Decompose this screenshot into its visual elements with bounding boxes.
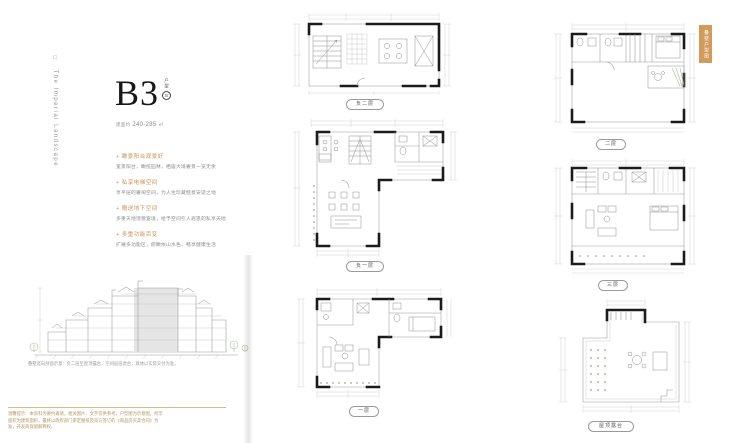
bullet-icon: + [116,206,120,212]
section-elevation-svg [26,272,254,362]
brand-name: The Imperial Landscape [52,70,58,167]
feature-heading: 瞰景阳台观景好 [122,154,164,160]
feature-list: +瞰景阳台观景好 宽景阳台，瞰揽园林，栖居大境奢景一览无余 +私享电梯空间 享平… [116,152,248,256]
footer-divider [8,407,226,408]
feature-body: 享平层的奢阔空间，为人生珍藏惬意安适之地 [116,189,248,196]
balcony-dots-glyph [579,255,644,256]
stairs-glyph [349,136,371,164]
stairs-glyph [611,312,631,320]
floor-label-basement2: 负二层 [346,99,384,110]
unit-class-badge: S [162,91,171,100]
floorplan-roof-terrace [553,298,695,416]
floorplan-basement2 [291,12,453,98]
stairs-glyph [576,172,596,192]
floor-label-level3: 三层 [598,280,628,291]
sofa-set-glyph [323,345,369,371]
unit-type-label: 户型 [164,78,170,89]
bed-glyph [409,317,435,331]
terrace-table-glyph [628,352,667,370]
brand-logo-square-icon: □ [52,55,58,63]
balcony-railing-glyph [397,166,441,174]
feature-item: +瞰景阳台观景好 宽景阳台，瞰揽园林，栖居大境奢景一览无余 [116,152,248,170]
bullet-icon: + [116,232,120,238]
floorplan-level3 [550,158,698,276]
unit-annotations: 户型 S [162,78,171,100]
bed-glyph [656,36,680,58]
unit-code: B3 [115,76,159,110]
page-fold-shadow [243,255,253,443]
floorplan-roof-terrace-svg [553,298,695,416]
plant-hatch-glyph [672,68,684,86]
feature-item: +赠送地下空间 多重天地馈赠宽境，给予空间引人遐思的私享天地 [116,204,248,222]
brand-vertical-text: □ The Imperial Landscape [52,55,58,215]
area-unit: ㎡ [158,122,163,127]
floorplan-basement2-svg [291,12,453,98]
kitchen-glyph [319,136,338,162]
floor-label-level2: 二层 [596,139,626,150]
bed-glyph [650,206,678,230]
bathroom-glyph [399,136,437,155]
landscape-dots-glyph [313,185,314,240]
feature-heading: 多重功能百变 [122,232,158,238]
roof-planting-dots-glyph [590,349,606,391]
floorplan-level2 [550,22,698,136]
bathroom-glyph [577,38,622,46]
feature-body: 宽景阳台，瞰揽园林，栖居大境奢景一览无余 [116,163,248,170]
feature-item: +多重功能百变 扩展多功能区，俯瞰依山水色，畅享健康生活 [116,230,248,248]
feature-body: 扩展多功能区，俯瞰依山水色，畅享健康生活 [116,241,248,248]
floorplan-level1 [293,287,458,399]
sofa-set-glyph [586,206,616,236]
media-cabinet-glyph [415,36,433,66]
floor-label-roof-terrace: 屋顶露台 [588,421,634,432]
section-caption: 叠墅竖向剖面示意：负二层至屋顶露台，空间层层退台，具体以实际交付为准。 [28,361,238,367]
brochure-page: □ The Imperial Landscape B3 户型 S 建面约 240… [0,0,740,443]
table-glyph [379,39,407,63]
ribbon-label: 叠墅户型图 [702,30,709,59]
stairs-glyph [630,34,645,62]
balcony-table-glyph [652,72,665,81]
storage-rack-glyph [347,34,367,64]
area-value: 240-285 [132,122,156,128]
disclaimer-text: 温馨提示：本资料为要约邀请，相关图片、文字仅供参考，户型图为示意图，所示面积为建… [8,411,163,431]
feature-body: 多重天地馈赠宽境，给予空间引人遐思的私享天地 [116,215,248,222]
bullet-icon: + [116,154,120,160]
terrace-dots-glyph [320,382,375,383]
floorplan-level2-svg [550,22,698,136]
building-section-drawing [26,272,254,362]
unit-header: B3 户型 S [115,76,171,110]
floor-label-level1: 一层 [349,406,379,417]
bathroom-glyph [603,172,646,182]
corner-ribbon-badge: 叠墅户型图 [699,25,712,63]
feature-item: +私享电梯空间 享平层的奢阔空间，为人生珍藏惬意安适之地 [116,178,248,196]
bullet-icon: + [116,180,120,186]
wardrobe-glyph [658,170,678,192]
floorplan-basement1 [291,118,459,258]
floor-label-basement1: 负一层 [346,261,384,272]
floorplan-level3-svg [550,158,698,276]
stairs-glyph [313,36,341,68]
feature-heading: 赠送地下空间 [122,206,158,212]
floorplan-basement1-svg [291,118,459,258]
unit-area: 建面约 240-285 ㎡ [116,122,163,128]
area-prefix: 建面约 [116,122,130,127]
feature-heading: 私享电梯空间 [122,180,158,186]
dining-set-glyph [329,192,361,228]
floorplan-level1-svg [293,287,458,399]
